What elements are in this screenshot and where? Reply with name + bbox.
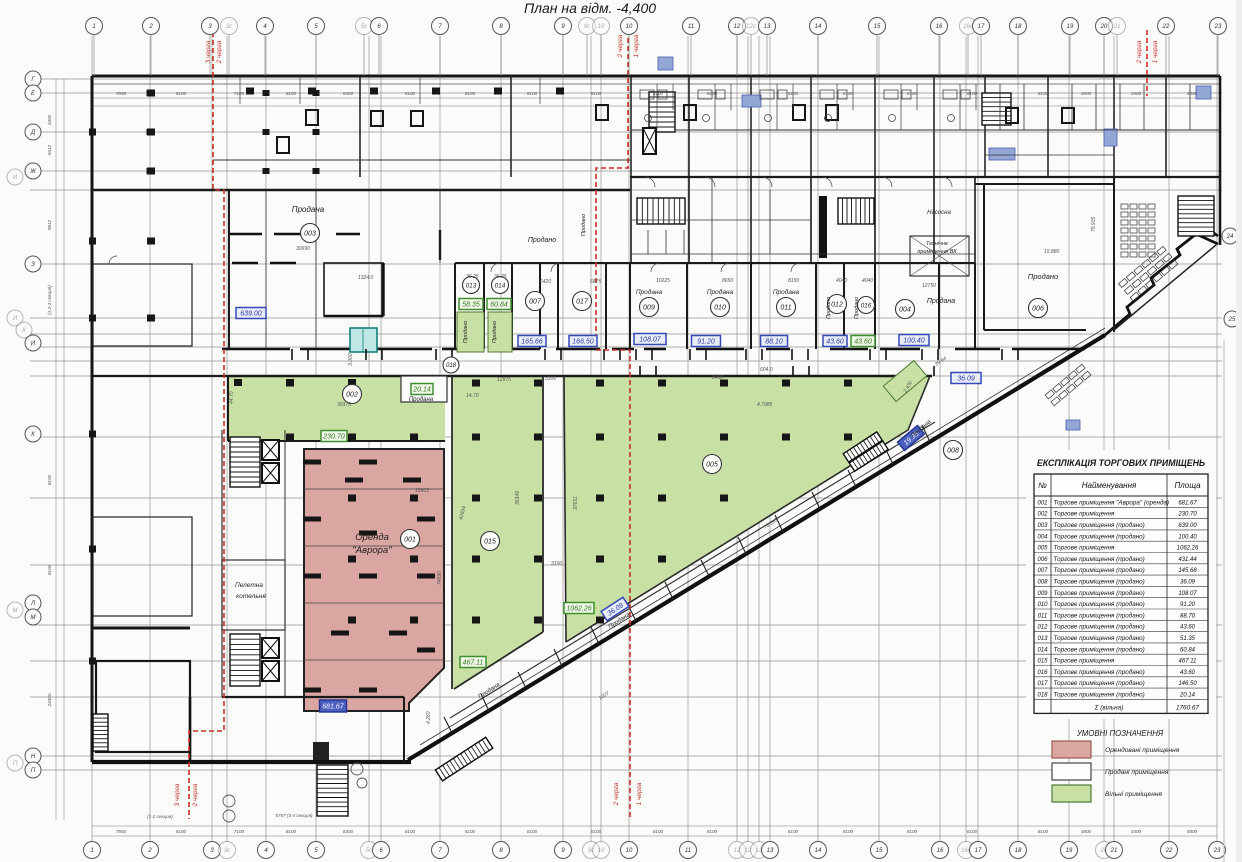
svg-text:013: 013 — [466, 282, 477, 289]
svg-text:007: 007 — [1037, 568, 1048, 574]
svg-text:Продана: Продана — [707, 288, 734, 296]
svg-text:8100: 8100 — [176, 91, 187, 96]
svg-text:005: 005 — [706, 462, 718, 469]
svg-text:8100: 8100 — [967, 829, 978, 834]
svg-text:3400: 3400 — [1131, 829, 1142, 834]
svg-text:011: 011 — [1038, 613, 1048, 619]
svg-text:Продана: Продана — [636, 288, 663, 296]
svg-text:Оренда: Оренда — [355, 532, 389, 543]
svg-text:681.67: 681.67 — [322, 704, 345, 711]
svg-text:15: 15 — [876, 848, 883, 854]
svg-text:003: 003 — [1037, 523, 1048, 529]
svg-text:8400: 8400 — [712, 375, 723, 381]
svg-text:котельня: котельня — [236, 593, 266, 600]
svg-text:приміщення ВК: приміщення ВК — [917, 249, 957, 255]
svg-text:7850: 7850 — [116, 91, 127, 96]
svg-text:8100: 8100 — [707, 91, 718, 96]
svg-text:И: И — [13, 175, 18, 181]
svg-text:8100: 8100 — [405, 829, 416, 834]
svg-text:7100: 7100 — [234, 829, 245, 834]
svg-text:10: 10 — [626, 848, 633, 854]
svg-text:Торгове приміщення (продано): Торгове приміщення (продано) — [1054, 578, 1145, 586]
svg-text:230.70: 230.70 — [1177, 512, 1197, 518]
svg-text:№: № — [1038, 481, 1047, 490]
svg-text:88.10: 88.10 — [765, 339, 783, 346]
svg-text:35349: 35349 — [515, 491, 521, 505]
svg-text:3c: 3c — [224, 848, 230, 854]
svg-text:009: 009 — [1037, 591, 1048, 597]
svg-text:УМОВНІ ПОЗНАЧЕННЯ: УМОВНІ ПОЗНАЧЕННЯ — [1076, 729, 1164, 738]
svg-text:43.60: 43.60 — [854, 339, 872, 346]
svg-text:8150: 8150 — [788, 278, 799, 284]
svg-text:24: 24 — [1226, 234, 1234, 240]
svg-text:431.44: 431.44 — [1178, 557, 1197, 563]
svg-text:Торгове приміщення (продано): Торгове приміщення (продано) — [1054, 521, 1145, 529]
svg-text:003: 003 — [304, 231, 316, 238]
svg-text:Продано: Продано — [528, 236, 556, 244]
svg-text:17: 17 — [975, 848, 982, 854]
svg-text:8100: 8100 — [1038, 829, 1049, 834]
svg-text:2 черга: 2 черга — [617, 34, 624, 58]
svg-text:5612: 5612 — [47, 144, 52, 155]
svg-text:006: 006 — [1037, 557, 1048, 563]
svg-text:2 черга: 2 черга — [216, 40, 223, 64]
svg-text:3400: 3400 — [1131, 91, 1142, 96]
svg-text:3c: 3c — [226, 24, 232, 30]
svg-text:3100: 3100 — [551, 561, 562, 567]
svg-text:018: 018 — [446, 363, 457, 369]
svg-text:467.11: 467.11 — [1179, 659, 1197, 665]
svg-text:008: 008 — [1037, 580, 1048, 586]
svg-text:017: 017 — [1037, 681, 1048, 687]
svg-text:22: 22 — [1165, 848, 1173, 854]
svg-text:Продано: Продано — [854, 297, 860, 319]
svg-text:Найменування: Найменування — [1082, 481, 1137, 490]
svg-text:8100: 8100 — [653, 829, 664, 834]
svg-text:19903: 19903 — [415, 488, 429, 494]
svg-text:44.70: 44.70 — [229, 391, 235, 404]
svg-text:20: 20 — [1100, 24, 1108, 30]
svg-text:4040: 4040 — [836, 278, 847, 284]
svg-text:24400: 24400 — [47, 693, 52, 707]
svg-text:П: П — [31, 768, 36, 774]
svg-text:8400: 8400 — [343, 829, 354, 834]
svg-text:12c: 12c — [746, 24, 756, 30]
svg-text:002: 002 — [1037, 512, 1048, 518]
svg-text:8100: 8100 — [843, 829, 854, 834]
svg-text:3400: 3400 — [47, 114, 52, 125]
svg-text:8100: 8100 — [465, 829, 476, 834]
svg-text:36.09: 36.09 — [1180, 580, 1196, 586]
svg-text:13: 13 — [764, 24, 771, 30]
svg-text:Продано: Продано — [1028, 272, 1058, 281]
svg-text:1324.0: 1324.0 — [358, 275, 374, 281]
svg-text:108.07: 108.07 — [639, 337, 662, 344]
svg-text:Σ (вільна): Σ (вільна) — [1094, 703, 1124, 711]
svg-text:20.14: 20.14 — [1179, 693, 1196, 699]
svg-text:23: 23 — [1213, 848, 1221, 854]
svg-text:10: 10 — [598, 848, 605, 854]
svg-text:Продана: Продана — [292, 205, 325, 214]
svg-text:004: 004 — [1037, 534, 1048, 540]
svg-text:001: 001 — [1037, 500, 1047, 506]
svg-text:16c: 16c — [963, 24, 973, 30]
svg-text:Технічне: Технічне — [926, 241, 948, 247]
svg-text:016: 016 — [1037, 670, 1048, 676]
svg-text:100.40: 100.40 — [1178, 534, 1197, 540]
svg-text:Продано: Продано — [463, 321, 469, 343]
svg-text:681.67: 681.67 — [1178, 500, 1197, 506]
svg-text:Вільні приміщення: Вільні приміщення — [1105, 790, 1162, 798]
svg-text:007: 007 — [529, 299, 542, 306]
svg-text:Торгове приміщення: Торгове приміщення — [1054, 544, 1116, 552]
svg-text:8100: 8100 — [907, 91, 918, 96]
svg-text:23: 23 — [1214, 24, 1222, 30]
svg-text:Торгове приміщення (продано): Торгове приміщення (продано) — [1054, 611, 1145, 619]
svg-text:8100: 8100 — [47, 564, 52, 575]
svg-text:Торгове приміщення: Торгове приміщення — [1054, 510, 1116, 518]
svg-text:Продана: Продана — [773, 288, 800, 296]
svg-text:12: 12 — [734, 24, 741, 30]
svg-text:8100: 8100 — [591, 829, 602, 834]
svg-text:8100: 8100 — [1038, 91, 1049, 96]
svg-text:16: 16 — [937, 848, 944, 854]
svg-text:22: 22 — [1162, 24, 1170, 30]
svg-text:005: 005 — [1037, 546, 1048, 552]
svg-text:18: 18 — [1015, 24, 1022, 30]
svg-text:014: 014 — [495, 282, 506, 289]
svg-text:006: 006 — [1032, 306, 1044, 313]
svg-text:8100: 8100 — [405, 91, 416, 96]
svg-text:7100: 7100 — [234, 91, 245, 96]
svg-text:Л: Л — [30, 601, 36, 607]
svg-text:145.68: 145.68 — [1178, 568, 1197, 574]
svg-text:3 черга: 3 черга — [205, 40, 212, 63]
svg-text:4800: 4800 — [1187, 91, 1198, 96]
svg-text:15.880: 15.880 — [1044, 249, 1060, 255]
svg-text:017: 017 — [576, 299, 589, 306]
svg-text:4.7985: 4.7985 — [757, 402, 773, 408]
svg-text:Торгове приміщення (продано): Торгове приміщення (продано) — [1054, 555, 1145, 563]
svg-text:2: 2 — [147, 848, 152, 854]
svg-text:Орендовані приміщення: Орендовані приміщення — [1105, 746, 1180, 754]
svg-text:Пелетна: Пелетна — [235, 582, 263, 589]
svg-text:14: 14 — [815, 848, 822, 854]
svg-text:018: 018 — [1037, 693, 1048, 699]
svg-text:002: 002 — [346, 392, 358, 399]
svg-text:015: 015 — [1037, 659, 1048, 665]
svg-text:1: 1 — [90, 848, 93, 854]
svg-text:7850: 7850 — [116, 829, 127, 834]
svg-text:11: 11 — [688, 24, 694, 30]
svg-text:4800: 4800 — [1081, 829, 1092, 834]
svg-text:8650: 8650 — [722, 278, 733, 284]
svg-text:8100: 8100 — [286, 829, 297, 834]
svg-text:Продано: Продано — [826, 297, 832, 319]
svg-text:И: И — [31, 341, 36, 347]
svg-text:3.000: 3.000 — [348, 353, 354, 366]
svg-text:10225: 10225 — [656, 278, 670, 284]
svg-text:Д: Д — [30, 130, 36, 136]
svg-text:19: 19 — [1066, 848, 1073, 854]
svg-text:2 черга: 2 черга — [613, 782, 620, 806]
svg-text:21: 21 — [1110, 848, 1118, 854]
svg-text:9812: 9812 — [47, 219, 52, 230]
svg-text:13: 13 — [767, 848, 774, 854]
svg-text:146.50: 146.50 — [1178, 681, 1197, 687]
svg-text:166.50: 166.50 — [572, 339, 594, 346]
svg-text:Торгове приміщення (продано): Торгове приміщення (продано) — [1054, 691, 1145, 699]
svg-text:91.20: 91.20 — [1180, 602, 1196, 608]
svg-text:012: 012 — [831, 302, 843, 309]
svg-text:1: 1 — [92, 24, 95, 30]
svg-text:ЕКСПЛІКАЦІЯ ТОРГОВИХ ПРИМІЩЕНЬ: ЕКСПЛІКАЦІЯ ТОРГОВИХ ПРИМІЩЕНЬ — [1037, 458, 1205, 468]
svg-text:16: 16 — [936, 24, 943, 30]
svg-text:М: М — [31, 615, 36, 621]
svg-text:17: 17 — [978, 24, 985, 30]
svg-text:Насосна: Насосна — [927, 210, 951, 216]
svg-text:004: 004 — [899, 307, 911, 314]
svg-text:Продано: Продано — [492, 321, 498, 343]
svg-text:001: 001 — [404, 537, 416, 544]
svg-text:Торгове приміщення (продано): Торгове приміщення (продано) — [1054, 589, 1145, 597]
svg-text:2 черга: 2 черга — [1136, 40, 1143, 64]
svg-text:4800: 4800 — [1187, 829, 1198, 834]
svg-text:230.70: 230.70 — [322, 434, 345, 441]
svg-text:18: 18 — [1015, 848, 1022, 854]
svg-text:Торгове приміщення (продано): Торгове приміщення (продано) — [1054, 668, 1145, 676]
svg-text:015: 015 — [484, 539, 496, 546]
svg-text:30690: 30690 — [296, 246, 310, 252]
svg-text:60.84: 60.84 — [490, 302, 508, 309]
svg-text:1760.67: 1760.67 — [1176, 704, 1200, 711]
svg-text:8100: 8100 — [843, 91, 854, 96]
svg-text:14: 14 — [815, 24, 822, 30]
svg-text:013: 013 — [1037, 636, 1048, 642]
svg-text:Торгове приміщення (продано): Торгове приміщення (продано) — [1054, 532, 1145, 540]
svg-text:008: 008 — [947, 448, 959, 455]
svg-text:012: 012 — [1037, 625, 1048, 631]
svg-text:1 черга: 1 черга — [1152, 40, 1159, 63]
svg-text:88.70: 88.70 — [1180, 613, 1196, 619]
svg-text:(1,2-3 секция): (1,2-3 секция) — [47, 285, 52, 315]
svg-text:8100: 8100 — [788, 829, 799, 834]
svg-text:Торгове приміщення "Аврора" (о: Торгове приміщення "Аврора" (оренда) — [1054, 498, 1170, 506]
svg-text:1062.26: 1062.26 — [1177, 546, 1199, 552]
svg-text:8100: 8100 — [788, 91, 799, 96]
svg-text:К: К — [22, 328, 26, 334]
svg-text:1062.26: 1062.26 — [566, 606, 591, 613]
svg-text:4040: 4040 — [862, 278, 873, 284]
svg-text:Н: Н — [31, 754, 36, 760]
svg-text:8400: 8400 — [343, 91, 354, 96]
svg-text:Ж: Ж — [29, 169, 36, 175]
svg-text:014: 014 — [1037, 647, 1048, 653]
svg-text:3100: 3100 — [545, 376, 556, 382]
svg-text:Торгове приміщення: Торгове приміщення — [1054, 657, 1116, 665]
svg-text:74690: 74690 — [437, 571, 443, 585]
svg-text:8100: 8100 — [967, 91, 978, 96]
svg-text:К: К — [31, 432, 35, 438]
svg-text:Торгове приміщення (продано): Торгове приміщення (продано) — [1054, 566, 1145, 574]
svg-text:Торгове приміщення (продано): Торгове приміщення (продано) — [1054, 679, 1145, 687]
svg-text:8100: 8100 — [707, 829, 718, 834]
svg-text:Торгове приміщення (продано): Торгове приміщення (продано) — [1054, 645, 1145, 653]
svg-text:6420: 6420 — [540, 279, 551, 285]
svg-text:10: 10 — [598, 24, 605, 30]
svg-text:010: 010 — [714, 305, 726, 312]
svg-text:Торгове приміщення (продано): Торгове приміщення (продано) — [1054, 623, 1145, 631]
svg-text:П: П — [13, 761, 18, 767]
svg-text:009: 009 — [643, 305, 655, 312]
svg-text:5757 (3-4 секция): 5757 (3-4 секция) — [275, 813, 313, 818]
svg-text:Площа: Площа — [1174, 481, 1201, 490]
svg-text:43.60: 43.60 — [826, 339, 844, 346]
svg-text:016: 016 — [861, 302, 872, 309]
svg-text:11: 11 — [685, 848, 691, 854]
svg-text:12750: 12750 — [922, 283, 936, 289]
svg-text:639.00: 639.00 — [1178, 523, 1197, 529]
svg-text:58.35: 58.35 — [462, 302, 480, 309]
svg-text:20.14: 20.14 — [412, 387, 431, 394]
svg-text:План на відм. -4,400: План на відм. -4,400 — [524, 0, 656, 16]
svg-text:10: 10 — [626, 24, 633, 30]
svg-text:Продана: Продана — [409, 397, 434, 403]
svg-text:60.84: 60.84 — [1180, 647, 1196, 653]
svg-text:165.66: 165.66 — [521, 339, 543, 346]
svg-text:(1-2 секция): (1-2 секция) — [147, 814, 173, 819]
svg-text:8100: 8100 — [653, 91, 664, 96]
svg-text:Продана: Продана — [927, 297, 955, 305]
svg-text:010: 010 — [1037, 602, 1048, 608]
svg-text:12975: 12975 — [497, 377, 511, 383]
svg-text:4.260: 4.260 — [426, 711, 432, 724]
svg-text:1 черга: 1 черга — [633, 34, 640, 57]
svg-text:8100: 8100 — [527, 91, 538, 96]
svg-text:5c: 5c — [361, 24, 367, 30]
svg-text:108.07: 108.07 — [1178, 591, 1197, 597]
svg-text:51.35: 51.35 — [1180, 636, 1196, 642]
svg-text:36.09: 36.09 — [957, 376, 975, 383]
svg-text:43.60: 43.60 — [1180, 670, 1196, 676]
svg-text:91.20: 91.20 — [697, 339, 715, 346]
svg-text:467.11: 467.11 — [463, 660, 484, 667]
svg-text:15: 15 — [874, 24, 881, 30]
svg-text:4800: 4800 — [1081, 91, 1092, 96]
svg-text:36.25: 36.25 — [466, 274, 479, 280]
svg-text:9c: 9c — [584, 24, 590, 30]
svg-text:100.40: 100.40 — [903, 338, 925, 345]
svg-text:79.935: 79.935 — [1091, 216, 1097, 232]
svg-text:19: 19 — [1067, 24, 1074, 30]
svg-text:21: 21 — [1113, 24, 1121, 30]
svg-text:2: 2 — [148, 24, 153, 30]
svg-text:Продано: Продано — [581, 214, 587, 236]
svg-text:8100: 8100 — [527, 829, 538, 834]
svg-text:2 черга: 2 черга — [192, 783, 199, 807]
svg-text:"Аврора": "Аврора" — [352, 545, 392, 556]
svg-text:И: И — [13, 316, 18, 322]
svg-text:011: 011 — [780, 305, 791, 312]
svg-text:8100: 8100 — [176, 829, 187, 834]
svg-text:639.00: 639.00 — [240, 311, 262, 318]
svg-text:8100: 8100 — [286, 91, 297, 96]
svg-text:604.0: 604.0 — [760, 367, 773, 373]
svg-text:6875: 6875 — [590, 279, 601, 285]
svg-text:14.70: 14.70 — [466, 393, 479, 399]
svg-text:Торгове приміщення (продано): Торгове приміщення (продано) — [1054, 634, 1145, 642]
svg-text:Торгове приміщення (продано): Торгове приміщення (продано) — [1054, 600, 1145, 608]
svg-text:37651: 37651 — [573, 496, 579, 510]
svg-text:3 черга: 3 черга — [174, 783, 181, 806]
svg-text:8100: 8100 — [591, 91, 602, 96]
svg-text:25: 25 — [1228, 317, 1236, 323]
svg-text:М: М — [13, 608, 18, 614]
svg-text:43.60: 43.60 — [1180, 625, 1196, 631]
svg-text:36.25: 36.25 — [494, 274, 507, 280]
svg-text:30375: 30375 — [337, 402, 351, 408]
svg-text:8100: 8100 — [465, 91, 476, 96]
svg-text:З: З — [31, 262, 35, 268]
svg-text:5c: 5c — [366, 848, 372, 854]
svg-text:8100: 8100 — [47, 474, 52, 485]
svg-text:1 черга: 1 черга — [636, 782, 643, 805]
svg-text:8100: 8100 — [907, 829, 918, 834]
svg-text:Продані приміщення: Продані приміщення — [1105, 768, 1169, 776]
